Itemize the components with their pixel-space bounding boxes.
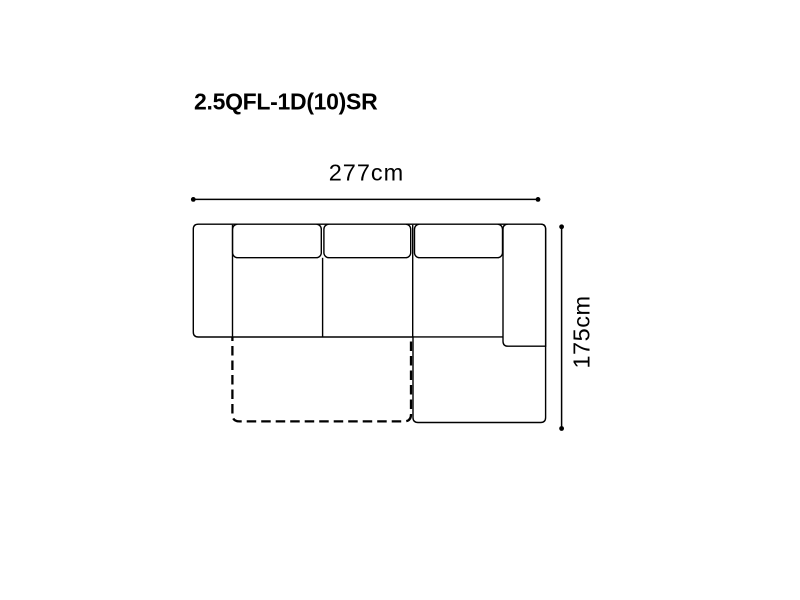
svg-text:277cm: 277cm: [329, 160, 405, 186]
svg-text:175cm: 175cm: [569, 295, 595, 368]
svg-text:2.5QFL-1D(10)SR: 2.5QFL-1D(10)SR: [194, 89, 378, 115]
